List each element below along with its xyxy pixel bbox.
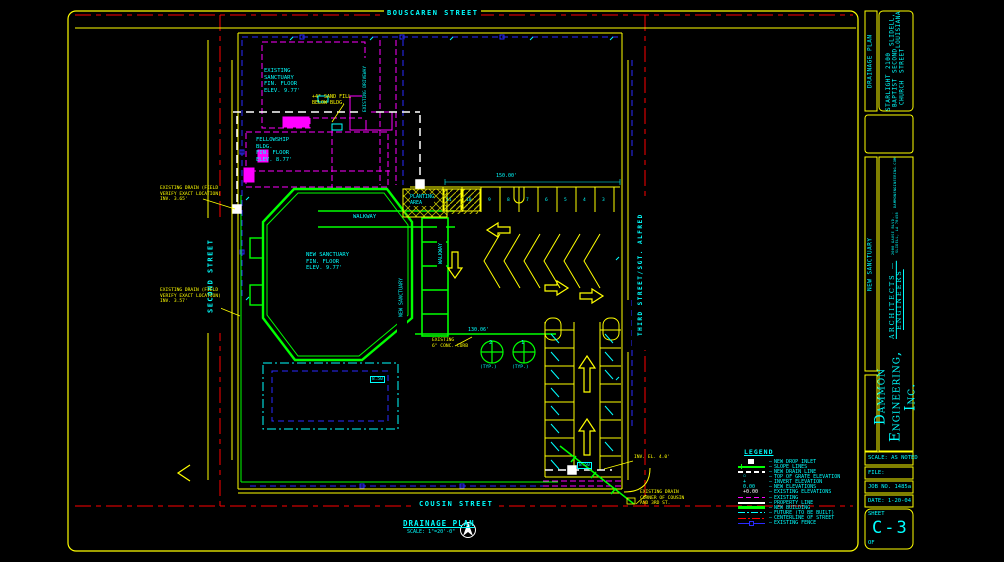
titleblock-job: JOB NO. 1485a	[868, 484, 911, 491]
slope-drain-line	[560, 446, 634, 504]
legend-title: LEGEND	[744, 448, 860, 456]
drain-note-3: EXISTING DRAIN CORNER OF COUSIN AND 3RD …	[640, 490, 684, 507]
firm-disciplines: ARCHITECTS — ENGINEERS	[889, 258, 903, 342]
titleblock-date: DATE: 1-20-04	[868, 498, 911, 505]
elev-b: 8.50	[577, 462, 592, 469]
titleblock-project: NEW SANCTUARY	[865, 157, 877, 371]
firm-web: DAMMONENGINEERING.COM	[894, 157, 898, 208]
firm-name: Dammon Engineering, Inc.	[874, 342, 919, 451]
stall-number: 4	[583, 198, 586, 204]
legend-symbol-fence	[738, 521, 765, 526]
client-city: SLIDELL, LOUISIANA	[889, 11, 902, 48]
existing-sanctuary-label: EXISTING SANCTUARY FIN. FLOOR ELEV. 9.77…	[264, 68, 300, 94]
stall-number: 11	[446, 198, 452, 204]
drain-note-1: EXISTING DRAIN (FIELD VERIFY EXACT LOCAT…	[160, 186, 221, 203]
legend: LEGEND – NEW DROP INLET – SLOPE LINES – …	[738, 448, 860, 526]
inv-el-note: INV. EL. 4.0'	[634, 455, 670, 461]
fellowship-label: FELLOWSHIP BLDG. FIN. FLOOR ELEV. 8.77'	[256, 137, 292, 163]
street-label-second: SECOND STREET	[202, 218, 221, 333]
stall-number: 3	[602, 198, 605, 204]
walkway-vertical-label: WALKWAY	[437, 224, 446, 282]
titleblock-scale: SCALE: AS NOTED	[868, 455, 918, 462]
walkway-label: WALKWAY	[350, 214, 379, 221]
new-sanctuary-vertical-label: NEW SANCTUARY	[397, 242, 407, 352]
titleblock-file: FILE:	[868, 470, 885, 477]
titleblock-drawing-type: DRAINAGE PLAN	[865, 11, 877, 111]
legend-row: – EXISTING FENCE	[738, 521, 860, 526]
new-sanctuary-outline	[250, 189, 412, 360]
stall-number: 6	[545, 198, 548, 204]
tree-1-label: 1	[521, 340, 524, 347]
stall-number: 9	[488, 198, 491, 204]
client-name: STARLIGHT BAPTIST CHURCH	[886, 74, 906, 111]
street-centerlines	[75, 15, 853, 506]
titleblock-sheet-label: SHEET	[868, 511, 885, 518]
planting-area-label: PLANTING AREA	[410, 194, 434, 206]
stall-number: 7	[526, 198, 529, 204]
drain-note-2: EXISTING DRAIN (FIELD VERIFY EXACT LOCAT…	[160, 288, 221, 305]
sheet-number: C-3	[872, 518, 909, 538]
tree-typ-a: (TYP.)	[480, 365, 497, 371]
stall-number: 10	[466, 198, 472, 204]
street-curbs	[75, 28, 856, 493]
elev-a: 8.50	[370, 376, 385, 383]
sand-fill-note: +4" SAND FILL BELOW BLDG.	[312, 94, 351, 106]
tree-typ-b: (TYP.)	[512, 365, 529, 371]
plan-scale: SCALE: 1"=20'-0"	[407, 529, 455, 535]
stall-number: 5	[564, 198, 567, 204]
stall-number: 8	[507, 198, 510, 204]
street-label-bouscaren: BOUSCAREN STREET	[384, 9, 481, 17]
titleblock-client: STARLIGHT BAPTIST CHURCH 2100 SECOND STR…	[879, 11, 913, 111]
tree-2-label: 2	[489, 340, 492, 347]
existing-driveway-label: EXISTING DRIVEWAY	[362, 58, 371, 120]
titleblock-firm: Dammon Engineering, Inc. ARCHITECTS — EN…	[879, 157, 913, 451]
new-sanctuary-label: NEW SANCTUARY FIN. FLOOR ELEV. 9.77'	[306, 252, 349, 272]
dim-130: 130.06'	[468, 327, 489, 333]
client-address: 2100 SECOND STREET	[886, 48, 906, 74]
future-building	[263, 363, 398, 429]
dim-150: 150.00'	[496, 173, 517, 179]
street-label-cousin: COUSIN STREET	[416, 500, 496, 508]
parking-linework	[403, 187, 621, 477]
drawing-sheet: BOUSCAREN STREET COUSIN STREET SECOND ST…	[0, 0, 1004, 562]
plan-title: DRAINAGE PLAN	[403, 519, 475, 528]
titleblock-of: OF	[868, 540, 875, 547]
street-label-third: THIRD STREET/SGT. ALFRED	[632, 200, 651, 350]
curb-note: EXISTING 6" CONC. CURB	[432, 338, 468, 349]
firm-address: 2000 GAUSE BLVD. · SLIDELL, LA 70458	[892, 208, 900, 259]
note-leaders	[203, 104, 646, 504]
